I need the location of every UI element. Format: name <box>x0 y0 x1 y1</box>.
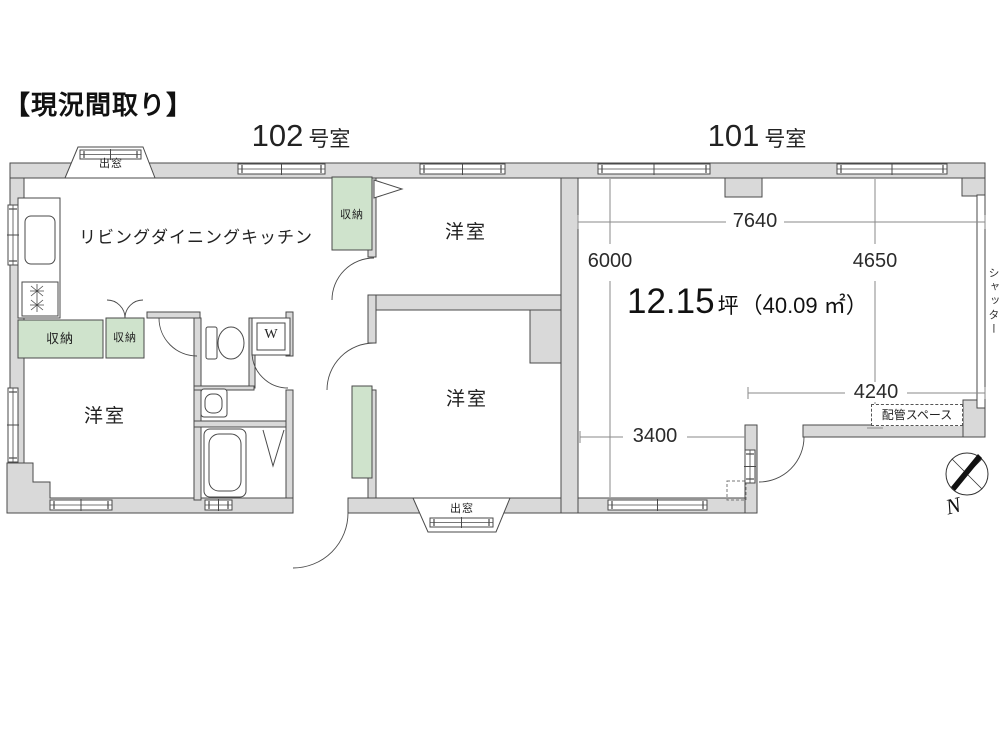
door-arc-western-bottom <box>327 343 374 390</box>
washer-label: W <box>264 328 277 342</box>
window-symbol <box>598 163 710 175</box>
door-arc-closet-left <box>107 300 125 318</box>
toilet <box>206 327 244 359</box>
window-symbol <box>7 205 19 265</box>
page-title: 【現況間取り】 <box>4 92 193 118</box>
duct-wall <box>530 302 561 363</box>
kitchen <box>18 198 60 318</box>
shutter-track <box>977 195 985 408</box>
dimension-lines <box>578 179 985 497</box>
room-label-western-left: 洋室 <box>84 407 126 426</box>
unit-102-number: 102 <box>252 118 304 153</box>
bay-window-label-bottom: 出窓 <box>450 504 474 515</box>
dimension-4240: 4240 <box>850 382 903 402</box>
washbasin <box>201 389 227 417</box>
unit-102-suffix: 号室 <box>308 128 350 151</box>
bay-window-label-top: 出窓 <box>99 159 123 170</box>
wall-ldk-washroom <box>147 312 200 318</box>
storage-label-1: 収納 <box>46 332 74 345</box>
wall-hall-right-mid <box>368 295 376 343</box>
window-symbol <box>744 450 756 483</box>
window-symbol <box>205 499 232 511</box>
unit-101-number: 101 <box>708 118 760 153</box>
party-wall <box>561 178 578 513</box>
toilet-bowl <box>218 327 244 359</box>
area-label: 12.15坪（40.09 ㎡） <box>627 284 868 319</box>
door-arc-closet-right <box>125 300 143 318</box>
unit-label-101: 101号室 <box>708 120 807 151</box>
utility-dashed-box <box>727 481 746 500</box>
outer-walls <box>7 163 985 513</box>
door-arc-entrance <box>293 513 348 568</box>
closet-door-triangle <box>374 180 402 198</box>
windows <box>7 149 947 528</box>
shoe-cabinet <box>352 386 372 478</box>
area-unit: 坪 <box>718 295 739 318</box>
pillar <box>725 178 762 197</box>
room-label-ldk: リビングダイニングキッチン <box>79 229 313 246</box>
wall-hall-left-lower <box>286 390 293 498</box>
door-arc-toilet <box>252 352 288 388</box>
dimension-7640: 7640 <box>729 211 782 231</box>
window-symbol <box>608 499 707 511</box>
door-arc-western-top <box>332 258 374 300</box>
unit-label-102: 102号室 <box>252 120 351 151</box>
unit-101-suffix: 号室 <box>764 128 806 151</box>
bath-folding-door <box>263 430 284 466</box>
window-symbol <box>50 499 112 511</box>
storage-label-2: 収納 <box>113 333 137 344</box>
door-arc-washroom <box>159 318 197 356</box>
pipe-space-box: 配管スペース <box>871 404 963 426</box>
window-symbol <box>430 517 493 528</box>
storage-label-3: 収納 <box>340 210 364 221</box>
area-sqm: （40.09 ㎡） <box>741 293 868 318</box>
wall-between-western-rooms <box>376 295 561 310</box>
window-symbol <box>837 163 947 175</box>
wall-sanitary-left <box>194 318 201 500</box>
window-symbol <box>420 163 505 175</box>
top-right-corner-wall <box>962 178 985 196</box>
stove <box>22 282 58 316</box>
bathroom <box>204 429 284 497</box>
window-symbol <box>7 388 19 462</box>
bottom-right-wall <box>803 425 963 437</box>
room-label-western-top: 洋室 <box>445 223 487 242</box>
kitchen-sink <box>25 216 55 264</box>
room-label-western-bottom: 洋室 <box>446 390 488 409</box>
dimension-6000: 6000 <box>584 251 637 271</box>
dimension-3400: 3400 <box>629 426 682 446</box>
door-arc-101-backdoor <box>759 437 804 482</box>
window-symbol <box>238 163 325 175</box>
area-value: 12.15 <box>627 282 715 321</box>
compass <box>946 453 988 495</box>
shutter-label: シャッター <box>987 267 998 337</box>
toilet-tank <box>206 327 217 359</box>
dimension-4650: 4650 <box>849 251 902 271</box>
floorplan-page: 【現況間取り】 102号室 101号室 リビングダイニングキッチン 洋室 洋室 … <box>0 0 1000 750</box>
wall-bath-top <box>194 421 290 427</box>
